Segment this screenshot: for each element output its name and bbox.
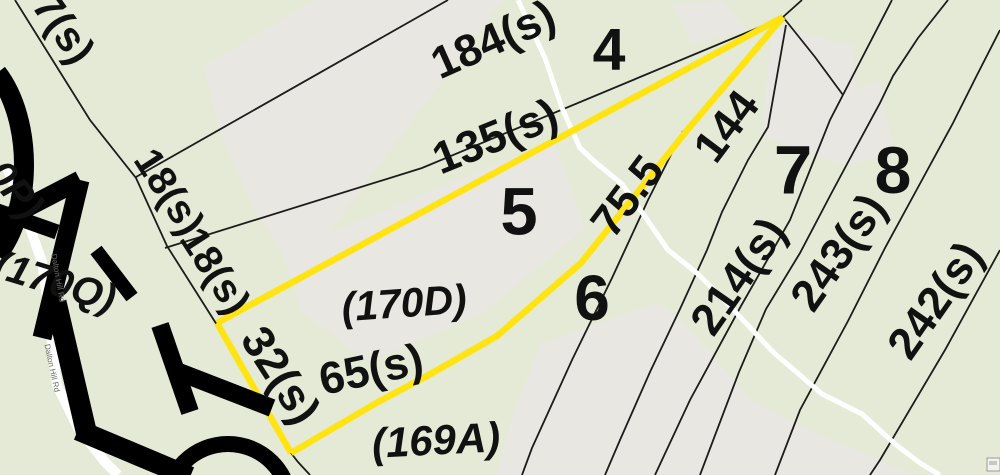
svg-text:(169A): (169A) — [371, 413, 502, 467]
svg-text:7: 7 — [774, 132, 812, 209]
svg-text:6: 6 — [574, 262, 610, 334]
svg-text:4: 4 — [593, 17, 626, 83]
svg-text:8: 8 — [875, 133, 912, 207]
svg-text:5: 5 — [500, 175, 537, 250]
svg-text:(170D): (170D) — [340, 276, 468, 331]
